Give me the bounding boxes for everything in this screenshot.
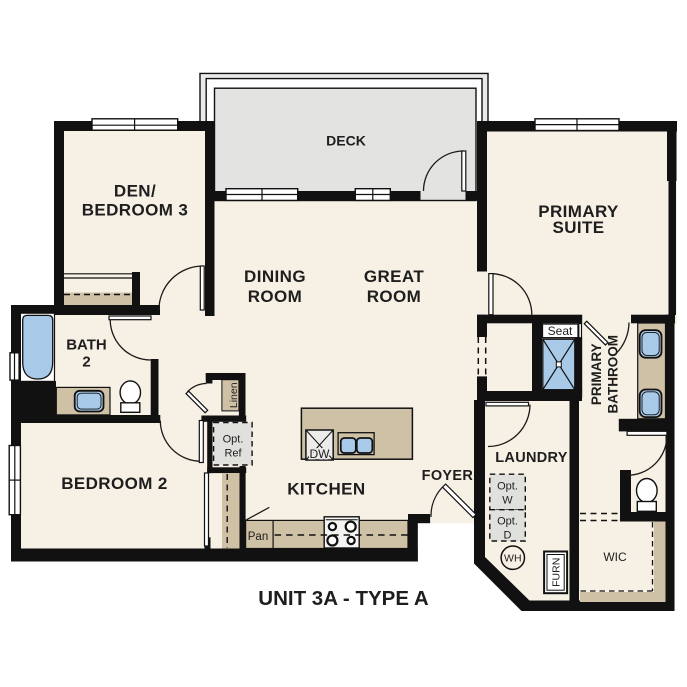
svg-text:PRIMARY: PRIMARY	[589, 343, 604, 405]
svg-text:Opt.: Opt.	[223, 434, 244, 446]
svg-text:SUITE: SUITE	[552, 218, 604, 237]
svg-text:UNIT 3A - TYPE A: UNIT 3A - TYPE A	[258, 587, 429, 610]
svg-text:W: W	[502, 495, 513, 507]
svg-text:2: 2	[82, 354, 90, 371]
svg-text:KITCHEN: KITCHEN	[287, 480, 365, 499]
svg-text:FURN: FURN	[550, 558, 562, 587]
svg-text:Seat: Seat	[548, 324, 573, 338]
svg-text:GREAT: GREAT	[364, 267, 424, 286]
svg-text:LAUNDRY: LAUNDRY	[495, 450, 567, 466]
svg-text:FOYER: FOYER	[422, 468, 474, 484]
svg-text:Opt.: Opt.	[497, 481, 518, 493]
svg-text:WIC: WIC	[603, 550, 627, 564]
svg-text:D: D	[504, 530, 512, 542]
svg-text:DECK: DECK	[326, 133, 366, 149]
svg-text:DEN/: DEN/	[114, 182, 156, 201]
svg-text:DINING: DINING	[244, 267, 306, 286]
svg-text:Opt.: Opt.	[497, 516, 518, 528]
svg-text:WH: WH	[504, 553, 522, 565]
svg-text:ROOM: ROOM	[248, 287, 302, 306]
svg-text:BATHROOM: BATHROOM	[606, 335, 621, 414]
svg-text:BEDROOM 2: BEDROOM 2	[61, 474, 168, 493]
svg-text:BATH: BATH	[66, 337, 107, 354]
svg-text:Pan: Pan	[248, 531, 268, 543]
svg-text:DW: DW	[310, 447, 331, 461]
svg-text:Linen: Linen	[228, 382, 240, 408]
svg-text:ROOM: ROOM	[367, 287, 421, 306]
svg-text:Ref: Ref	[224, 448, 242, 460]
svg-text:BEDROOM 3: BEDROOM 3	[82, 201, 189, 220]
